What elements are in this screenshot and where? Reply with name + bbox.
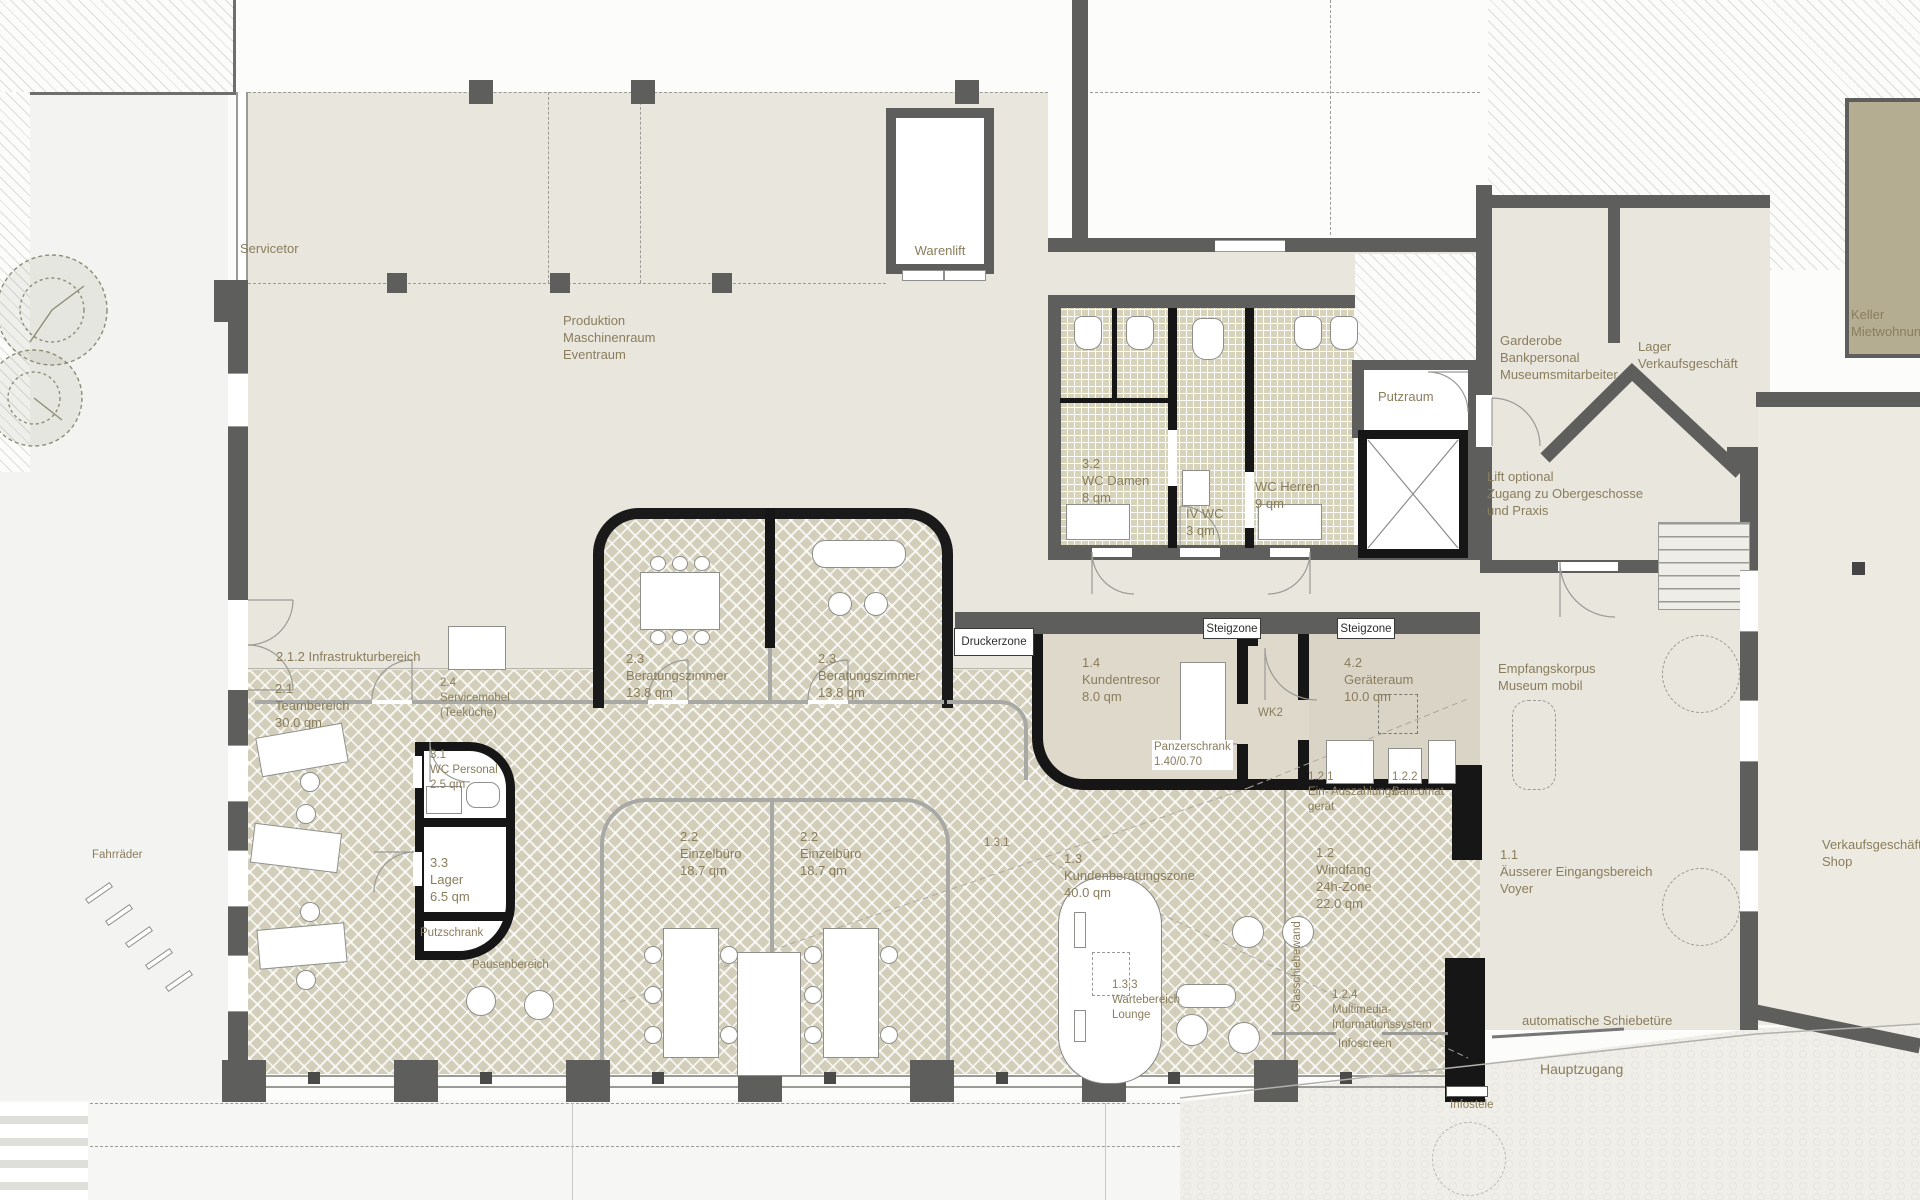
infrastruktur-label: 2.1.2 Infrastrukturbereich [276, 648, 421, 665]
chair [720, 946, 738, 964]
left-window [228, 745, 248, 802]
servicetor-label: Servicetor [240, 240, 299, 257]
wc-partition-gap [1168, 430, 1177, 486]
sink [1182, 470, 1210, 506]
servicemoebel-label: 2.4 Servicemöbel (Teeküche) [440, 676, 510, 722]
shop-wall-top [1756, 392, 1920, 407]
chair [650, 630, 666, 645]
column [469, 80, 493, 104]
garderobe-label: Garderobe Bankpersonal Museumsmitarbeite… [1500, 332, 1618, 383]
keller-label: Keller Mietwohnung [1851, 306, 1920, 340]
armchair [1232, 916, 1264, 948]
tresor-wall-right2 [1237, 744, 1248, 790]
wc-wall-left [1048, 295, 1061, 560]
wc-stall-divider [1112, 308, 1117, 400]
empfangskorpus-outline [1512, 700, 1556, 790]
sidewalk-edge-line [90, 1103, 1180, 1104]
dashed-circle-1 [1662, 635, 1740, 713]
sidewalk-edge-line2 [90, 1146, 1180, 1147]
column [955, 80, 979, 104]
wc-stall-wall [1060, 398, 1168, 403]
chair [296, 804, 316, 824]
chair [804, 986, 822, 1004]
garderobe-door-gap [1476, 395, 1492, 447]
windfang-label: 1.2 Windfang 24h-Zone 22.0 qm [1316, 844, 1372, 913]
shop-wall-chunk [1727, 447, 1758, 470]
steigzone-label-1: Steigzone [1203, 618, 1261, 639]
ne-wall-vertical [1072, 0, 1088, 240]
wc-herren-label: WC Herren 9 qm [1255, 478, 1320, 512]
chair [300, 772, 320, 792]
column [631, 80, 655, 104]
toilet [1074, 316, 1102, 350]
chair [880, 1026, 898, 1044]
armchair [1176, 1014, 1208, 1046]
sink-counter [1066, 504, 1130, 540]
empfangskorpus-label: Empfangskorpus Museum mobil [1498, 660, 1596, 694]
schiebetuere-label: automatische Schiebetüre [1522, 1012, 1672, 1029]
lounge-chair [864, 592, 888, 616]
hatch-left-band [0, 92, 30, 472]
putzraum-wall-left [1352, 360, 1364, 438]
lager-verkauf-label: Lager Verkaufsgeschäft [1638, 338, 1738, 372]
crosswalk [0, 1102, 88, 1200]
wc-door-gap [1180, 548, 1220, 557]
east-black-wall [1452, 765, 1482, 860]
dashed-circle-2 [1662, 868, 1740, 946]
aeusserer-label: 1.1 Äusserer Eingangsbereich Voyer [1500, 846, 1652, 897]
chair [804, 946, 822, 964]
tresor-wall-right [1237, 634, 1248, 704]
facade-column [394, 1060, 438, 1102]
pod-divider-1 [418, 818, 512, 827]
armchair [1228, 1022, 1260, 1054]
pausenbereich-label: Pausenbereich [472, 958, 549, 973]
lounge-chair [828, 592, 852, 616]
wc-door-gap [1270, 548, 1310, 557]
kundenberatung-label: 1.3 Kundenberatungszone 40.0 qm [1064, 850, 1195, 901]
facade-column [1254, 1060, 1298, 1102]
wc-wall-top [1048, 295, 1355, 308]
chair [644, 946, 662, 964]
hauptzugang-label: Hauptzugang [1540, 1060, 1623, 1078]
garderobe-divider [1608, 195, 1620, 343]
grid-line-ne [1330, 0, 1331, 235]
pod-door-gap [413, 756, 422, 788]
shop-column [1852, 562, 1865, 575]
left-corner-column [214, 280, 248, 322]
plaza-dashed-circle [1432, 1122, 1506, 1196]
desk-item [1074, 912, 1086, 948]
geraeteraum-label: 4.2 Geräteraum 10.0 qm [1344, 654, 1413, 705]
wc-damen-label: 3.2 WC Damen 8 qm [1082, 455, 1149, 506]
warenlift-door-leaf [944, 270, 986, 281]
chair [804, 1026, 822, 1044]
putzraum-label: Putzraum [1378, 388, 1434, 405]
pod-door-gap [413, 852, 422, 886]
beratung-label-2: 2.3 Beratungszimmer 13.8 qm [818, 650, 920, 701]
conference-table [640, 572, 720, 630]
left-window [228, 373, 248, 427]
chair [644, 986, 662, 1004]
grid-col-line-1 [548, 92, 549, 283]
glass-door-gap [372, 700, 412, 704]
wc-door-gap [1092, 548, 1132, 557]
desk [823, 928, 879, 1058]
column [550, 273, 570, 293]
floor-plan: Keller Mietwohnung Warenlift [0, 0, 1920, 1200]
beratung-divider [765, 508, 775, 648]
bancomat-label: 1.2.2 Bancomat [1392, 770, 1444, 800]
panzerschrank-label: Panzerschrank 1.40/0.70 [1152, 740, 1233, 770]
infoscreen-line [1272, 1032, 1336, 1035]
chair [720, 1026, 738, 1044]
wc-personal-label: 3.1 WC Personal 2.5 qm [430, 748, 498, 794]
stairs [1658, 522, 1750, 610]
toilet [1294, 316, 1322, 350]
facade-column [910, 1060, 954, 1102]
druckerzone-label: Druckerzone [954, 628, 1034, 656]
servicemoebel-counter [448, 626, 506, 670]
street-left [0, 88, 228, 1100]
pod-divider-2 [418, 912, 512, 921]
mullion [480, 1072, 492, 1084]
chair [644, 1026, 662, 1044]
mullion [1340, 1072, 1352, 1084]
infoscreen-label: Infoscreen [1338, 1037, 1392, 1052]
einzelbuero-label-1: 2.2 Einzelbüro 18.7 qm [680, 828, 741, 879]
lift-shaft [1358, 430, 1468, 558]
shop-window [1740, 700, 1758, 762]
multimedia-label: 1.2.4 Multimedia- Informationssystem [1332, 988, 1432, 1034]
sliding-door-line [1492, 1029, 1624, 1037]
shop-window [1740, 570, 1758, 632]
sidewalk-joint [572, 1103, 573, 1200]
wk2-label: WK2 [1258, 706, 1283, 721]
entrance-door-gap [1558, 562, 1618, 571]
beratung-divider-glass [768, 648, 772, 704]
beratung-label-1: 2.3 Beratungszimmer 13.8 qm [626, 650, 728, 701]
iv-wc-label: IV WC 3 qm [1186, 505, 1224, 539]
kundentresor-label: 1.4 Kundentresor 8.0 qm [1082, 654, 1160, 705]
left-window [228, 955, 248, 1012]
grid-line-top-right [1090, 92, 1480, 93]
mullion [652, 1072, 664, 1084]
geraeteraum-door-gap [1293, 700, 1309, 740]
putzraum-wall-top [1352, 360, 1480, 370]
left-door-opening [228, 600, 248, 690]
lager-pod-label: 3.3 Lager 6.5 qm [430, 854, 470, 905]
putzschrank-label: Putzschrank [420, 926, 483, 941]
garderobe-wall-top [1492, 195, 1770, 208]
chair [880, 946, 898, 964]
chair [694, 556, 710, 571]
floor-entrance-11 [1480, 560, 1758, 1030]
mullion [1168, 1072, 1180, 1084]
warenlift-label: Warenlift [886, 242, 994, 259]
einzelbuero-label-2: 2.2 Einzelbüro 18.7 qm [800, 828, 861, 879]
floor-shop [1758, 400, 1920, 1025]
beraterstation-label: 1.3.1 [984, 836, 1010, 851]
sidewalk-joint2 [1105, 1103, 1106, 1200]
column [712, 273, 732, 293]
chair [300, 902, 320, 922]
desk-item [1074, 1010, 1086, 1042]
cabinet [737, 952, 801, 1076]
left-window [228, 850, 248, 907]
team-desk [256, 922, 347, 970]
steigzone-label-2: Steigzone [1337, 618, 1395, 639]
toilet [1330, 316, 1358, 350]
mullion [308, 1072, 320, 1084]
round-table [466, 986, 496, 1016]
corner-tower [1445, 958, 1485, 1102]
chair [672, 556, 688, 571]
round-table [524, 990, 554, 1020]
panzerschrank-box [1180, 662, 1226, 744]
lounge-table [1176, 984, 1236, 1008]
desk [663, 928, 719, 1058]
mullion [996, 1072, 1008, 1084]
chair [296, 970, 316, 990]
chair [650, 556, 666, 571]
facade-column [566, 1060, 610, 1102]
hatch-wedge-ne [1355, 254, 1480, 364]
facade-column [222, 1060, 266, 1102]
grid-col-line-2 [640, 92, 641, 283]
hatch-top-left [0, 0, 236, 95]
warenlift-door-leaf [902, 270, 944, 281]
oval-table [812, 540, 906, 568]
wc-partition-gap [1245, 472, 1254, 528]
produktion-label: Produktion Maschinenraum Eventraum [563, 312, 656, 363]
chair [694, 630, 710, 645]
chair [672, 630, 688, 645]
infostele-marker [1446, 1086, 1488, 1097]
verkaufsgeschaeft-label: Verkaufsgeschäft Shop [1822, 836, 1920, 870]
teambereich-label: 2.1 Teambereich 30.0 qm [275, 680, 349, 731]
infostele-label: Infostele [1450, 1098, 1493, 1113]
wartebereich-label: 1.3.3 Wartebereich Lounge [1112, 978, 1180, 1024]
column [387, 273, 407, 293]
fahrraeder-label: Fahrräder [92, 848, 143, 863]
toilet-accessible [1192, 318, 1224, 360]
mullion [824, 1072, 836, 1084]
ein-auszahlung-label: 1.2.1 Ein- Auszahlungs- gerät [1308, 770, 1401, 816]
lift-optional-label: Lift optional Zugang zu Obergeschosse un… [1487, 468, 1643, 519]
glasschiebewand-label: Glasschiebewand [1290, 921, 1305, 1012]
north-wall-window [1215, 240, 1285, 252]
toilet [1126, 316, 1154, 350]
wc-partition-damen-iv [1168, 308, 1177, 548]
shop-window [1740, 850, 1758, 912]
